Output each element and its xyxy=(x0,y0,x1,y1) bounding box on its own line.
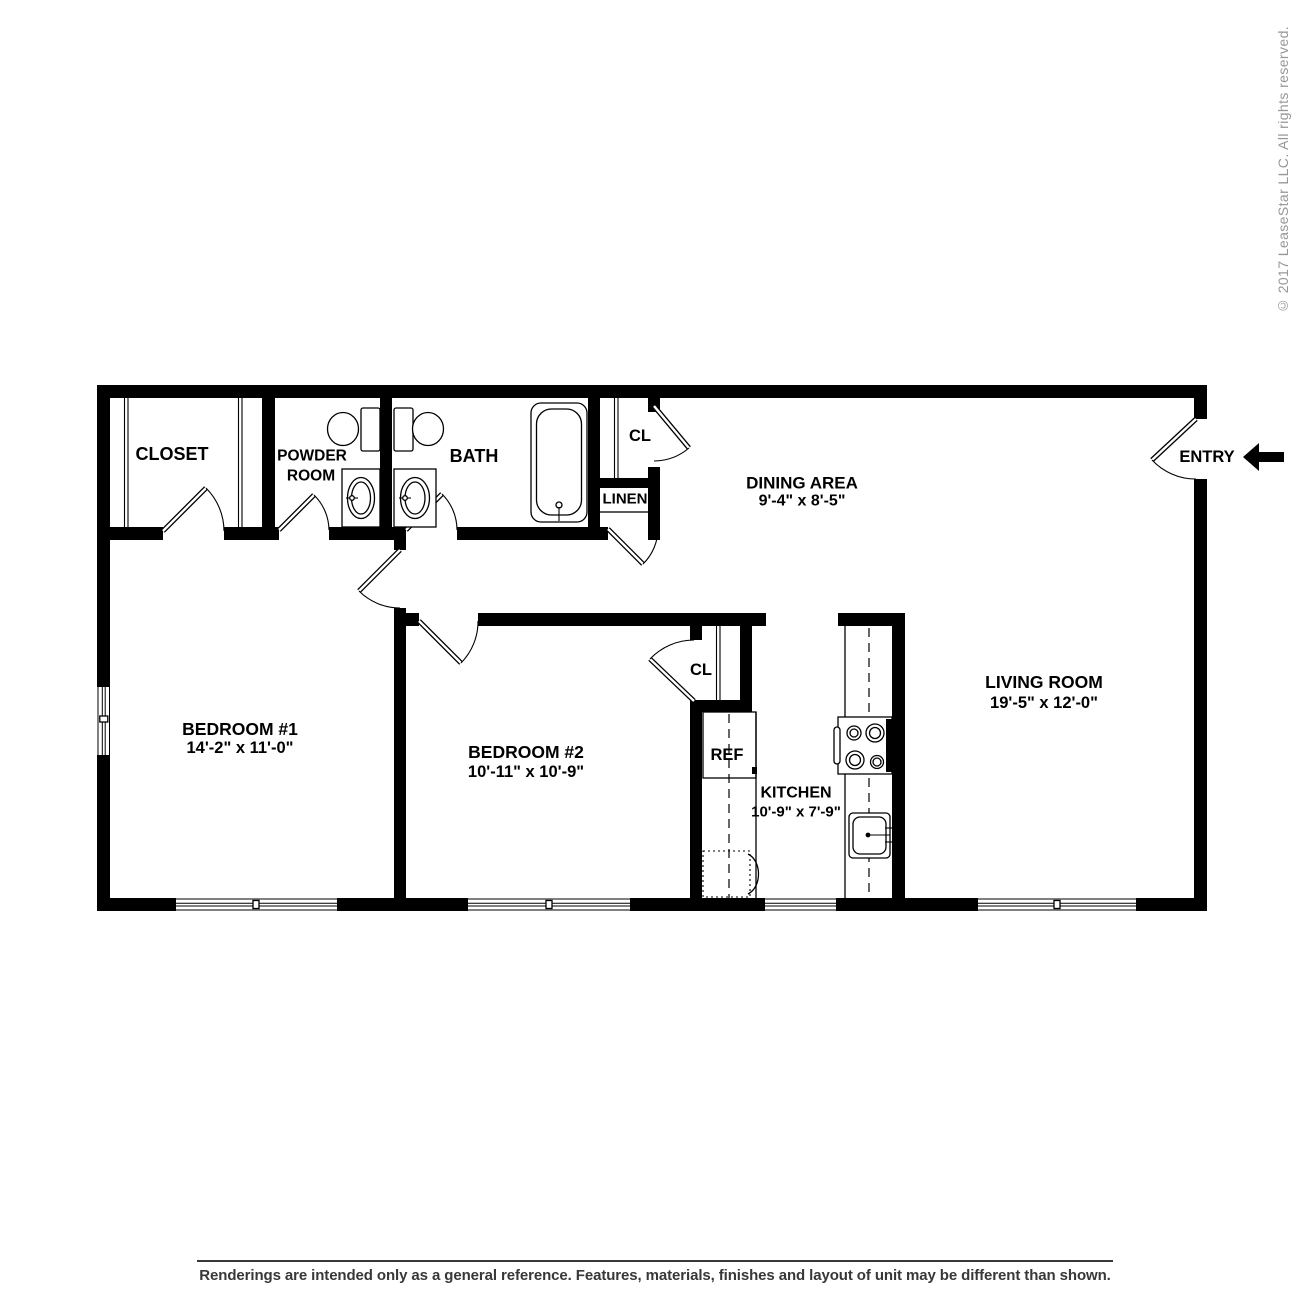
door-swing-icon xyxy=(654,448,689,461)
powder-room-label-line2: ROOM xyxy=(287,468,335,485)
window-icon xyxy=(176,899,337,910)
toilet-icon xyxy=(328,408,381,451)
window-icon xyxy=(98,687,110,755)
door-swing-icon xyxy=(314,495,329,530)
wall-segment xyxy=(690,700,752,712)
entry-label: ENTRY xyxy=(1179,448,1234,466)
wall-segment xyxy=(394,527,406,550)
bedroom-1-dimensions: 14'-2" x 11'-0" xyxy=(187,739,294,757)
door-leaf-icon xyxy=(654,406,689,448)
closet-rod-icon xyxy=(615,398,619,478)
floor-plan-drawing: CLOSET POWDER ROOM BATH CL LINEN DINING … xyxy=(0,0,1300,1300)
closet-rod-icon xyxy=(239,398,243,527)
powder-room-label-line1: POWDER xyxy=(277,448,347,465)
bedroom-1-label: BEDROOM #1 xyxy=(182,719,298,739)
copyright-watermark: © 2017 LeaseStar LLC. All rights reserve… xyxy=(1275,14,1291,314)
bedroom-1-door xyxy=(359,550,400,608)
kitchen-sink-icon xyxy=(849,813,892,858)
wall-segment xyxy=(457,527,590,540)
window-icon xyxy=(765,899,836,910)
closet-label: CLOSET xyxy=(135,444,208,464)
refrigerator-label: REF xyxy=(711,746,744,764)
bedroom-2-label: BEDROOM #2 xyxy=(468,742,584,762)
wall-segment xyxy=(588,398,600,540)
window-icon xyxy=(468,899,630,910)
sink-icon xyxy=(394,469,436,527)
wall-segment xyxy=(380,398,392,527)
closet-rod-icon xyxy=(125,398,129,527)
refrigerator-icon xyxy=(703,712,757,778)
wall-segment xyxy=(690,626,702,640)
wall-segment xyxy=(690,700,702,911)
door-swing-icon xyxy=(359,591,400,608)
wall-segment xyxy=(838,613,905,626)
window-icon xyxy=(978,899,1136,910)
window-mullion xyxy=(253,901,259,909)
disclaimer-text: Renderings are intended only as a genera… xyxy=(197,1260,1113,1284)
bedroom-2-door xyxy=(419,621,478,663)
wall-segment xyxy=(97,898,176,911)
door-leaf-icon xyxy=(163,488,206,531)
toilet-icon xyxy=(394,408,444,451)
wall-segment xyxy=(262,398,275,540)
window-mullion xyxy=(100,716,108,722)
dining-area-label: DINING AREA xyxy=(746,474,858,493)
linen-label: LINEN xyxy=(603,491,648,508)
wall-segment xyxy=(97,527,163,540)
door-leaf-icon xyxy=(279,495,314,530)
bath-label: BATH xyxy=(450,446,499,466)
powder-room-door xyxy=(279,495,329,530)
hall-closet-label: CL xyxy=(629,427,651,445)
floor-plan-page: CLOSET POWDER ROOM BATH CL LINEN DINING … xyxy=(0,0,1300,1300)
door-swing-icon xyxy=(442,494,457,530)
left-arrow-icon xyxy=(1243,443,1284,471)
door-leaf-icon xyxy=(419,621,461,663)
wall-segment xyxy=(1194,479,1207,911)
wall-segment xyxy=(1194,385,1207,419)
door-swing-icon xyxy=(650,640,694,659)
living-room-label: LIVING ROOM xyxy=(985,672,1103,692)
kitchen-dimensions: 10'-9" x 7'-9" xyxy=(751,804,841,821)
kitchen-label: KITCHEN xyxy=(760,785,831,802)
dishwasher-icon xyxy=(703,851,759,897)
bedroom-2-closet-door xyxy=(650,640,694,701)
wall-segment xyxy=(97,385,1207,398)
closet-door xyxy=(163,488,224,531)
bedroom-2-dimensions: 10'-11" x 10'-9" xyxy=(468,763,584,781)
living-room-dimensions: 19'-5" x 12'-0" xyxy=(990,694,1098,712)
door-leaf-icon xyxy=(650,659,694,701)
door-leaf-icon xyxy=(359,550,400,591)
wall-segment xyxy=(740,626,752,712)
wall-segment xyxy=(836,898,978,911)
closet-rod-icon xyxy=(717,626,721,700)
stove-icon xyxy=(834,717,892,774)
door-swing-icon xyxy=(206,488,224,531)
dining-area-dimensions: 9'-4" x 8'-5" xyxy=(759,493,846,510)
window-mullion xyxy=(546,901,552,909)
bathtub-icon xyxy=(531,403,587,522)
wall-segment xyxy=(394,608,406,911)
wall-segment xyxy=(97,755,110,911)
door-swing-icon xyxy=(461,621,478,663)
sink-icon xyxy=(342,469,380,527)
walls xyxy=(97,385,1207,911)
door-leaf-icon xyxy=(608,529,643,564)
wall-segment xyxy=(892,626,905,911)
hall-closet-door xyxy=(654,406,689,461)
window-mullion xyxy=(1054,901,1060,909)
bedroom-2-closet-label: CL xyxy=(690,661,712,679)
wall-segment xyxy=(478,613,766,626)
wall-segment xyxy=(406,613,419,626)
